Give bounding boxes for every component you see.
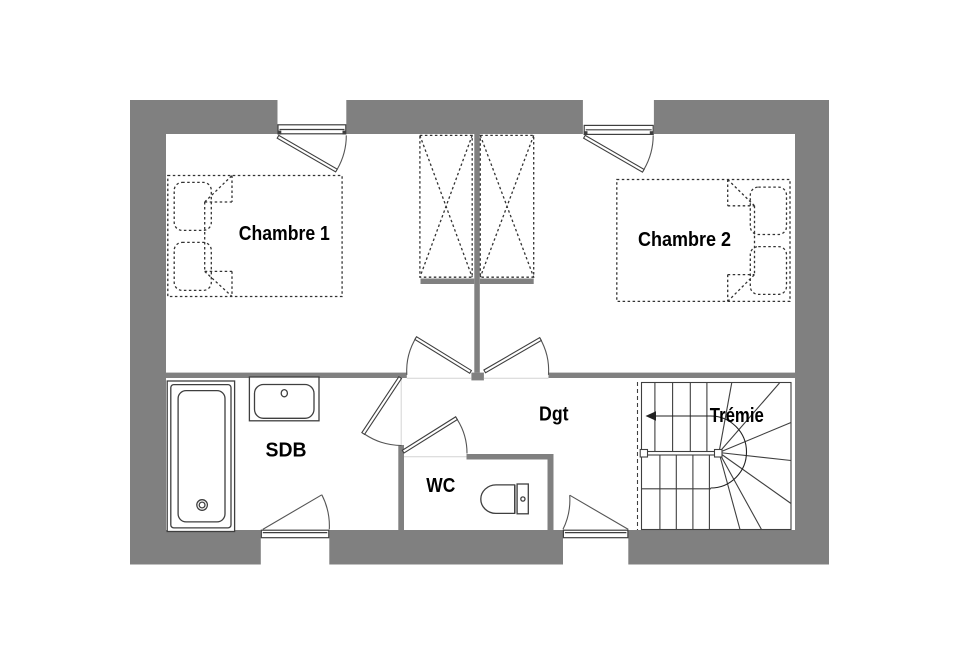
svg-text:Chambre 2: Chambre 2 [638, 229, 731, 251]
svg-text:SDB: SDB [266, 440, 307, 462]
svg-text:Trémie: Trémie [710, 405, 764, 427]
svg-text:Dgt: Dgt [539, 403, 569, 425]
svg-text:WC: WC [426, 475, 455, 497]
svg-text:Chambre 1: Chambre 1 [239, 223, 330, 245]
